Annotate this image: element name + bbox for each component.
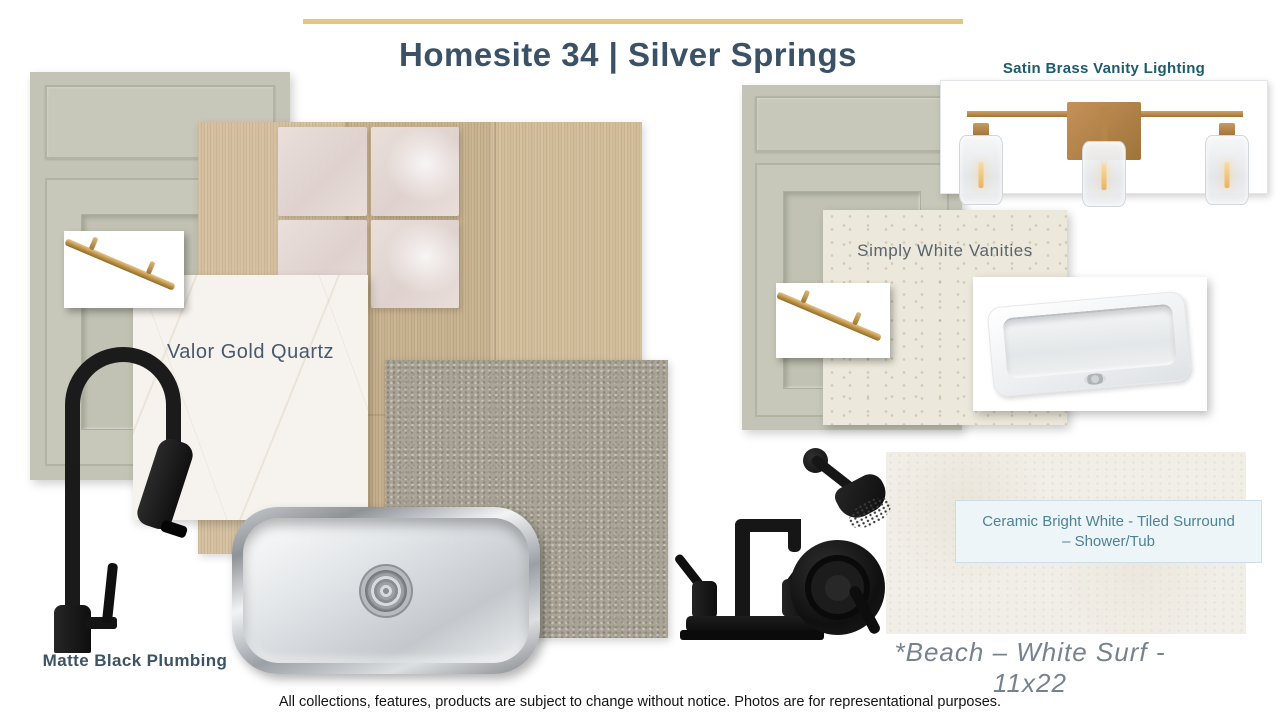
mood-board: Homesite 34 | Silver Springs Valor Gold … — [0, 0, 1280, 720]
vanity-lighting-label: Satin Brass Vanity Lighting — [940, 60, 1268, 77]
stainless-sink-icon — [232, 507, 540, 674]
light-bulb — [1102, 164, 1107, 190]
tile-swatch — [371, 127, 460, 216]
sink-bowl — [1002, 304, 1177, 380]
shower-valve-icon — [790, 540, 885, 635]
light-bulb — [979, 162, 984, 188]
pull-post — [852, 312, 862, 326]
sink-drain — [365, 570, 407, 612]
faucet-nozzle — [160, 519, 188, 538]
vanity-light-card — [940, 80, 1268, 194]
shower-tile-label: Ceramic Bright White - Tiled Surround – … — [976, 512, 1241, 551]
white-sink-icon — [986, 291, 1191, 398]
gold-accent-line — [303, 19, 963, 24]
faucet-pipe — [65, 465, 80, 613]
disclaimer-text: All collections, features, products are … — [0, 694, 1280, 710]
valve-hub — [825, 575, 851, 601]
pull-post — [801, 290, 811, 304]
brass-pull-card — [776, 283, 890, 358]
faucet-handle-base — [692, 581, 717, 619]
vanity-label: Simply White Vanities — [823, 241, 1067, 261]
glass-shade — [1205, 135, 1249, 205]
sink-bowl — [243, 518, 529, 663]
light-bulb — [1225, 162, 1230, 188]
bath-sink-card — [973, 277, 1207, 411]
tile-swatch — [278, 127, 367, 216]
sink-drain — [1084, 373, 1107, 386]
glass-shade — [1082, 141, 1126, 207]
plumbing-label: Matte Black Plumbing — [20, 651, 250, 671]
faucet-riser — [735, 527, 750, 621]
page-title: Homesite 34 | Silver Springs — [378, 36, 878, 74]
brass-pull-card — [64, 231, 184, 308]
pull-post — [89, 237, 99, 251]
tile-swatch — [371, 220, 460, 309]
faucet-body — [54, 605, 91, 653]
pull-post — [146, 261, 156, 275]
faucet-handle — [102, 563, 118, 624]
kitchen-faucet-icon — [45, 347, 245, 653]
brass-pull-icon — [776, 291, 882, 341]
shower-tile-label-box: Ceramic Bright White - Tiled Surround – … — [955, 500, 1262, 563]
brass-pull-icon — [64, 238, 175, 291]
floor-tile-label: *Beach – White Surf - 11x22 — [880, 637, 1180, 699]
cabinet-drawer-front — [755, 96, 949, 152]
glass-shade — [959, 135, 1003, 205]
